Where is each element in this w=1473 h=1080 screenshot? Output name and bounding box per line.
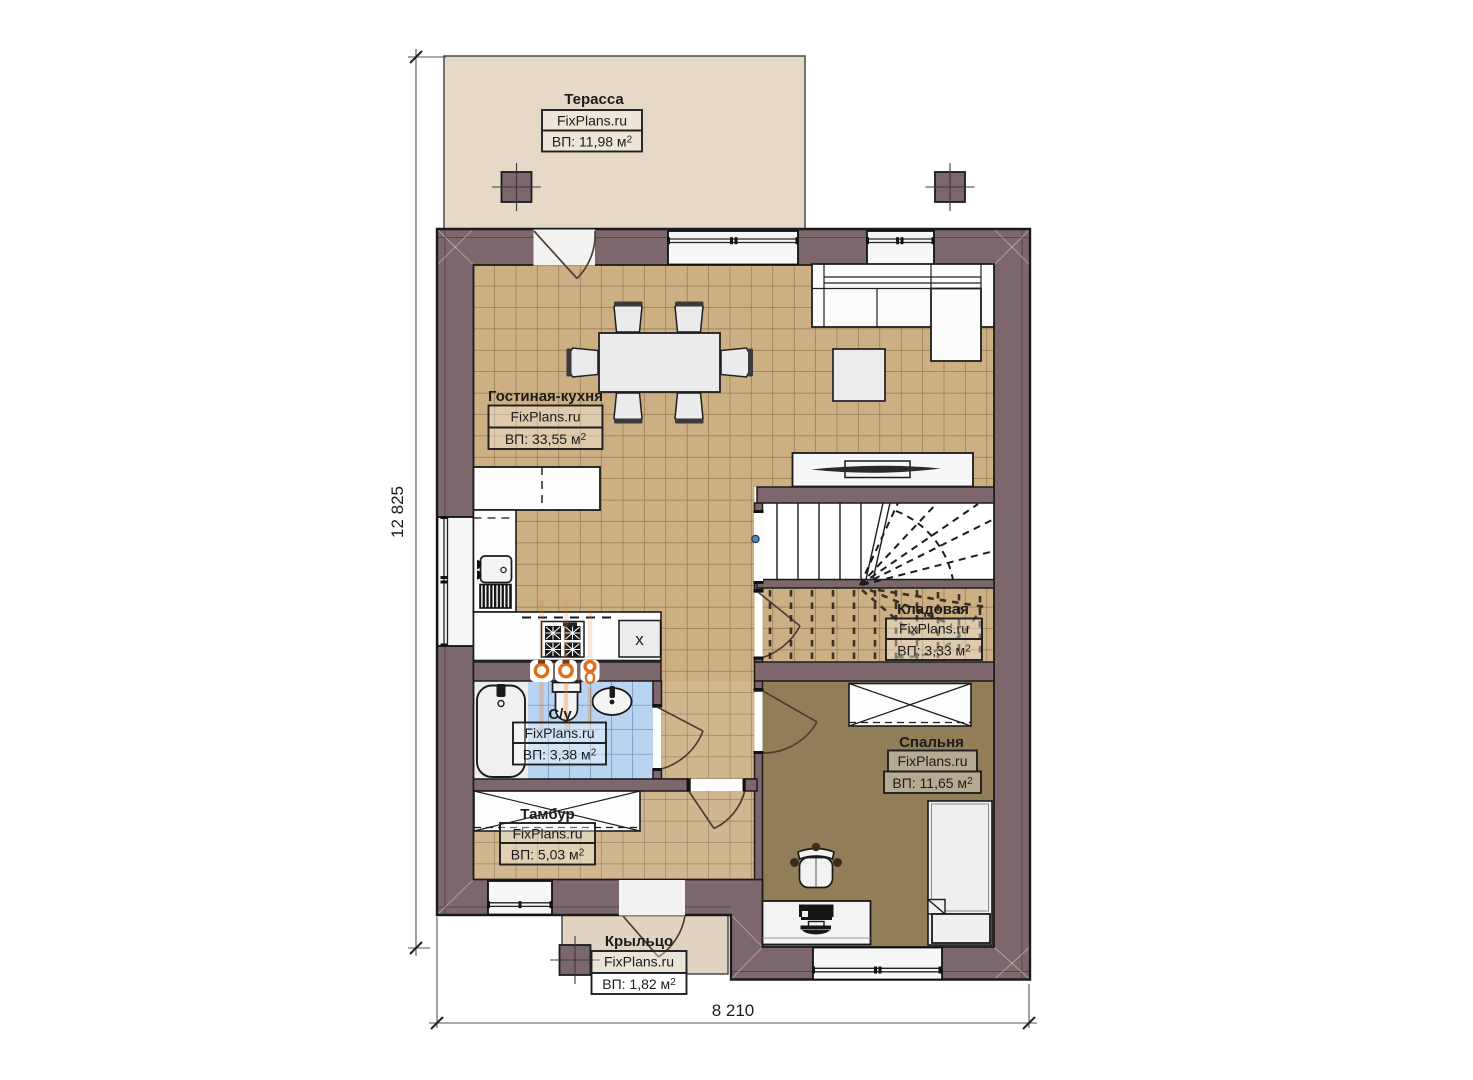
- svg-text:FixPlans.ru: FixPlans.ru: [557, 113, 627, 129]
- svg-text:Терасса: Терасса: [564, 91, 624, 108]
- svg-text:FixPlans.ru: FixPlans.ru: [604, 954, 674, 970]
- svg-text:Кладовая: Кладовая: [897, 601, 969, 618]
- svg-text:Крыльцо: Крыльцо: [605, 933, 673, 950]
- svg-text:ВП: 11,65 м2: ВП: 11,65 м2: [892, 775, 973, 791]
- svg-text:x: x: [635, 630, 644, 649]
- svg-text:FixPlans.ru: FixPlans.ru: [899, 621, 969, 637]
- svg-text:ВП: 3,33 м2: ВП: 3,33 м2: [897, 643, 971, 659]
- svg-text:FixPlans.ru: FixPlans.ru: [510, 409, 580, 425]
- svg-text:Тамбур: Тамбур: [520, 806, 574, 823]
- svg-text:Гостиная-кухня: Гостиная-кухня: [488, 388, 603, 405]
- svg-text:ВП: 3,38 м2: ВП: 3,38 м2: [523, 747, 597, 763]
- svg-text:ВП: 11,98 м2: ВП: 11,98 м2: [552, 134, 633, 150]
- svg-text:12 825: 12 825: [388, 486, 407, 538]
- svg-text:FixPlans.ru: FixPlans.ru: [524, 725, 594, 741]
- svg-text:С/у: С/у: [548, 706, 572, 723]
- svg-text:ВП: 5,03 м2: ВП: 5,03 м2: [511, 847, 585, 863]
- svg-text:ВП: 33,55 м2: ВП: 33,55 м2: [505, 431, 587, 447]
- svg-text:FixPlans.ru: FixPlans.ru: [512, 826, 582, 842]
- svg-text:ВП: 1,82 м2: ВП: 1,82 м2: [602, 976, 676, 992]
- svg-text:FixPlans.ru: FixPlans.ru: [897, 753, 967, 769]
- svg-text:Спальня: Спальня: [899, 734, 964, 751]
- svg-text:8 210: 8 210: [712, 1001, 755, 1020]
